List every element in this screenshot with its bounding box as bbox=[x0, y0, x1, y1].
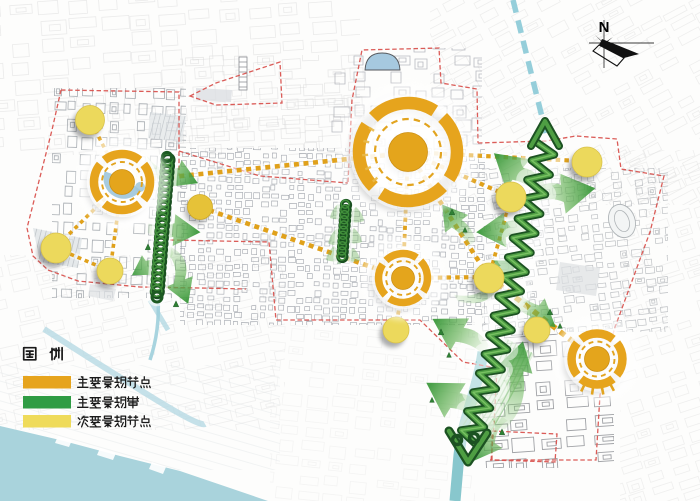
svg-text:N: N bbox=[599, 19, 610, 36]
